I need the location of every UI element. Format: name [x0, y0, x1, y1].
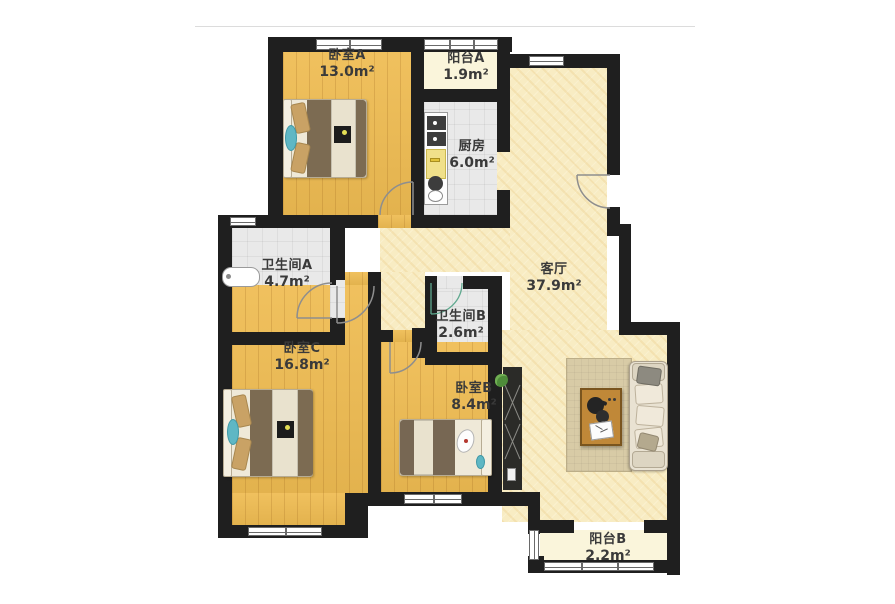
- sofa-cushion: [635, 405, 665, 427]
- window: [316, 39, 382, 50]
- board-item: [430, 158, 440, 162]
- wall: [268, 37, 283, 228]
- wall: [536, 520, 574, 533]
- wall: [330, 215, 345, 280]
- wall: [497, 190, 510, 228]
- window: [230, 217, 256, 226]
- wall: [345, 493, 368, 538]
- wall: [488, 492, 540, 506]
- window: [529, 56, 564, 66]
- divider-line: [195, 26, 695, 27]
- doorway-floor: [497, 152, 510, 190]
- sink-pot: [428, 176, 443, 191]
- doorway-floor: [330, 280, 345, 318]
- bed-cushion-teal: [227, 419, 239, 445]
- window: [529, 530, 539, 560]
- wall: [411, 215, 510, 228]
- hallway-vertical: [380, 272, 425, 330]
- window: [248, 527, 322, 536]
- room-bedroom-c-lower: [232, 493, 345, 525]
- wall: [380, 330, 393, 342]
- pillow-dot: [464, 439, 468, 443]
- sofa-armrest: [632, 451, 665, 468]
- window: [544, 562, 654, 571]
- wall: [218, 332, 345, 345]
- stove-knob: [433, 121, 437, 125]
- cutting-board: [426, 149, 446, 179]
- wall: [667, 322, 680, 575]
- hallway-horizontal: [380, 228, 510, 272]
- wall: [412, 328, 425, 358]
- candle-dot: [285, 425, 290, 430]
- candle-dot: [342, 130, 347, 135]
- wardrobe-item: [507, 468, 516, 481]
- sofa-throw: [636, 365, 662, 386]
- table-dot: [608, 398, 611, 401]
- wall: [644, 520, 668, 533]
- room-balcony-b: [540, 530, 667, 562]
- bed-cushion-teal: [285, 125, 297, 151]
- bed-runner: [414, 420, 433, 475]
- window: [404, 494, 462, 504]
- kettle: [428, 190, 443, 202]
- sofa-cushion: [634, 383, 663, 405]
- wall: [619, 224, 631, 330]
- wall: [607, 54, 620, 175]
- stove-knob: [433, 137, 437, 141]
- floor-plan: 卧室A 13.0m² 阳台A 1.9m² 厨房 6.0m² 卫生间A 4.7m²…: [0, 0, 895, 604]
- wall: [368, 272, 381, 493]
- doorway-floor: [378, 215, 412, 228]
- room-living: [510, 68, 607, 330]
- wall: [268, 215, 378, 228]
- bathtub-drain: [226, 274, 231, 279]
- table-dot: [613, 398, 616, 401]
- wall: [411, 50, 424, 216]
- wall: [330, 318, 345, 332]
- bed-cushion-teal: [476, 455, 485, 469]
- wall: [330, 272, 336, 285]
- window: [424, 39, 498, 50]
- room-balcony-a: [424, 52, 497, 89]
- wall: [497, 102, 510, 152]
